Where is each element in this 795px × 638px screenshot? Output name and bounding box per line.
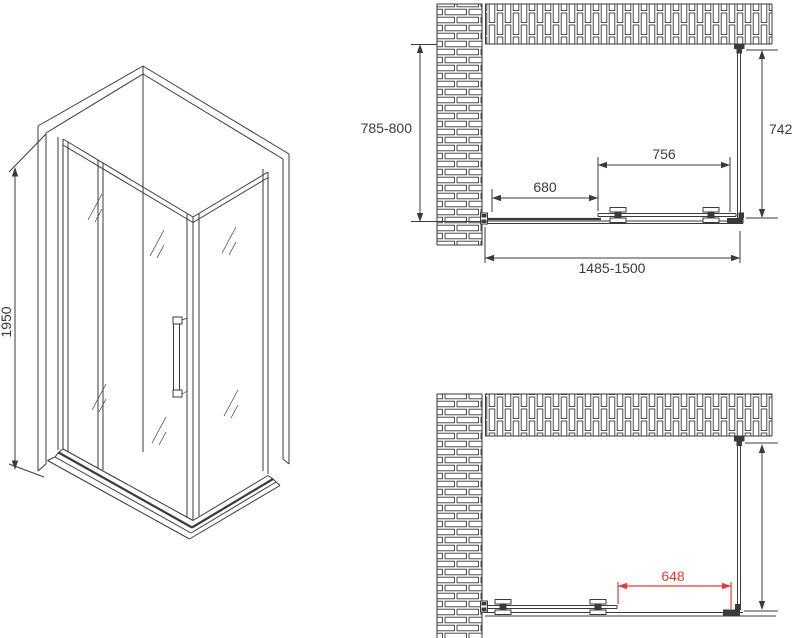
left-wall — [437, 4, 482, 245]
technical-drawing-canvas: 1950 — [0, 0, 795, 638]
dimension-width: 1485-1500 — [485, 227, 740, 276]
wall-profile-top — [734, 437, 745, 447]
dimension-side-unlabeled — [745, 443, 778, 610]
wall-profile-left — [481, 213, 488, 224]
sliding-door — [598, 208, 736, 223]
wall-profile-top — [734, 44, 745, 54]
dim-opening-label: 648 — [661, 568, 685, 584]
dim-depth-label: 785-800 — [361, 120, 413, 136]
dim-fixed-panel-label: 680 — [533, 179, 557, 195]
door-roller — [590, 600, 606, 615]
iso-bottom-tray — [48, 449, 281, 539]
dimension-fixed-panel: 680 — [492, 179, 598, 212]
dim-width-label: 1485-1500 — [579, 260, 646, 276]
dim-side-panel-label: 742 — [769, 121, 793, 137]
side-panel — [738, 48, 741, 218]
plan-view-door-closed: 785-800 742 756 680 — [361, 4, 793, 276]
glass-shine-marks — [88, 194, 238, 445]
back-wall — [486, 4, 773, 44]
plan-view-door-open: 648 — [437, 394, 778, 638]
door-roller — [703, 208, 719, 223]
dimension-height: 1950 — [0, 134, 46, 477]
drawing-svg: 1950 — [0, 0, 795, 638]
wall-profile-left — [481, 601, 488, 612]
door-roller — [610, 208, 626, 223]
dim-height-label: 1950 — [0, 306, 14, 337]
iso-back-walls — [38, 66, 289, 471]
isometric-view: 1950 — [0, 66, 289, 539]
back-wall — [486, 394, 773, 436]
side-panel — [738, 441, 741, 610]
iso-enclosure-frame — [58, 137, 268, 521]
corner-profile — [723, 604, 741, 616]
door-roller — [495, 600, 511, 615]
dimension-door: 756 — [598, 146, 730, 212]
dimension-opening: 648 — [618, 568, 731, 609]
dim-door-label: 756 — [652, 146, 676, 162]
left-wall — [437, 394, 482, 638]
door-handle — [173, 317, 188, 397]
dimension-side-panel: 742 — [746, 50, 793, 218]
